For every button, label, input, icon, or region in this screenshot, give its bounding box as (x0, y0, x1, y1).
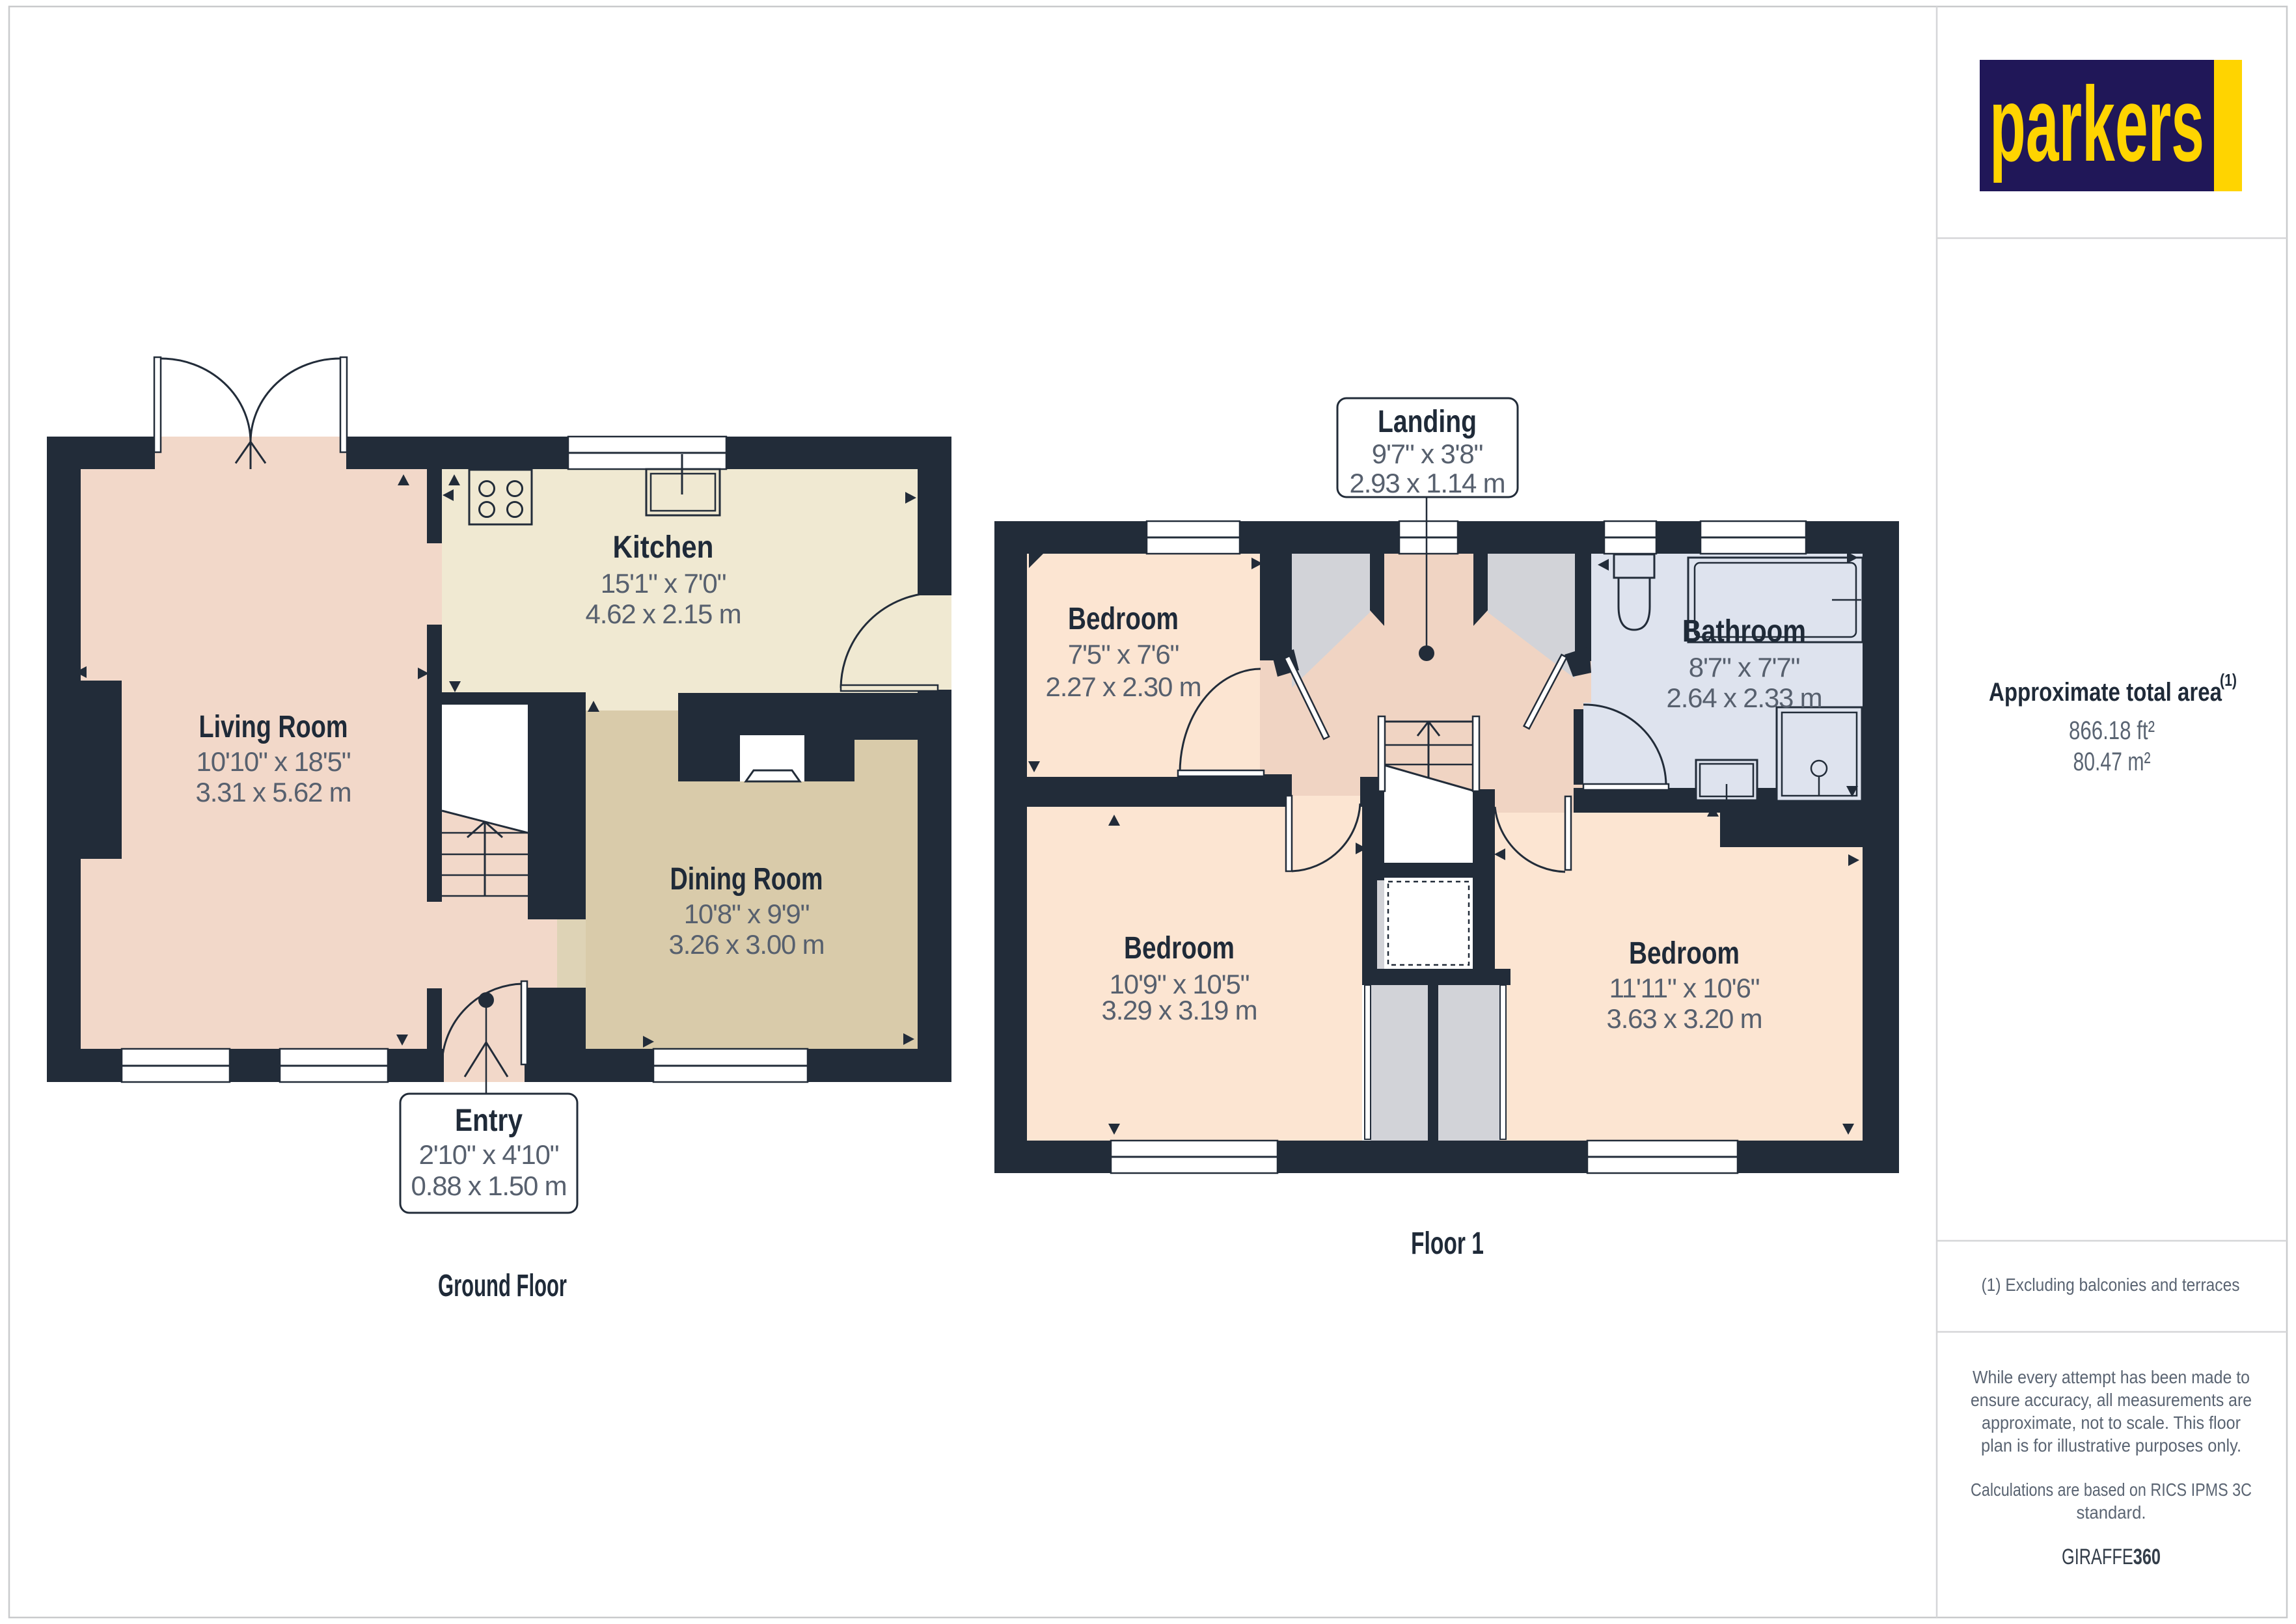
svg-text:0.88 x 1.50 m: 0.88 x 1.50 m (411, 1171, 567, 1201)
svg-text:11'11" x 10'6": 11'11" x 10'6" (1609, 973, 1760, 1003)
svg-text:15'1" x 7'0": 15'1" x 7'0" (601, 568, 726, 599)
svg-text:9'7" x 3'8": 9'7" x 3'8" (1372, 439, 1483, 469)
svg-text:Bathroom: Bathroom (1682, 614, 1806, 649)
svg-text:2'10" x 4'10": 2'10" x 4'10" (419, 1139, 559, 1170)
svg-text:Dining Room: Dining Room (670, 862, 823, 897)
svg-text:10'8" x 9'9": 10'8" x 9'9" (684, 899, 810, 929)
svg-text:866.18 ft²: 866.18 ft² (2069, 716, 2155, 745)
svg-text:Ground Floor: Ground Floor (438, 1269, 567, 1303)
svg-text:10'10" x 18'5": 10'10" x 18'5" (197, 746, 351, 777)
svg-text:GIRAFFE360: GIRAFFE360 (2062, 1545, 2161, 1569)
svg-text:While every attempt has been m: While every attempt has been made to (1973, 1367, 2250, 1387)
svg-text:8'7" x 7'7": 8'7" x 7'7" (1689, 652, 1800, 683)
svg-text:Calculations are based on RICS: Calculations are based on RICS IPMS 3C (1971, 1480, 2252, 1500)
svg-text:(1): (1) (2220, 670, 2237, 690)
svg-text:ensure accuracy, all measureme: ensure accuracy, all measurements are (1971, 1390, 2252, 1410)
svg-text:3.26 x 3.00 m: 3.26 x 3.00 m (669, 929, 825, 960)
svg-text:7'5" x 7'6": 7'5" x 7'6" (1068, 639, 1179, 670)
svg-text:2.93 x 1.14 m: 2.93 x 1.14 m (1350, 468, 1505, 498)
svg-text:80.47 m²: 80.47 m² (2073, 748, 2151, 776)
svg-text:standard.: standard. (2077, 1502, 2146, 1522)
svg-text:2.27 x 2.30 m: 2.27 x 2.30 m (1046, 671, 1201, 702)
svg-text:2.64 x 2.33 m: 2.64 x 2.33 m (1667, 683, 1822, 713)
svg-text:Floor 1: Floor 1 (1411, 1226, 1484, 1261)
svg-text:4.62 x 2.15 m: 4.62 x 2.15 m (586, 599, 741, 629)
svg-text:(1) Excluding balconies and te: (1) Excluding balconies and terraces (1982, 1275, 2240, 1295)
svg-text:Approximate total area: Approximate total area (1989, 678, 2222, 707)
svg-text:Bedroom: Bedroom (1124, 931, 1235, 966)
svg-text:Entry: Entry (455, 1103, 523, 1138)
svg-text:Bedroom: Bedroom (1068, 602, 1179, 636)
svg-text:3.63 x 3.20 m: 3.63 x 3.20 m (1607, 1003, 1762, 1034)
svg-text:Bedroom: Bedroom (1629, 936, 1740, 971)
svg-text:3.29 x 3.19 m: 3.29 x 3.19 m (1102, 995, 1257, 1025)
svg-text:Landing: Landing (1378, 405, 1477, 439)
svg-text:plan is for illustrative purpo: plan is for illustrative purposes only. (1981, 1435, 2241, 1455)
svg-text:3.31 x 5.62 m: 3.31 x 5.62 m (196, 777, 351, 807)
svg-text:approximate, not to scale. Thi: approximate, not to scale. This floor (1982, 1413, 2241, 1433)
svg-text:Living Room: Living Room (199, 710, 348, 744)
svg-text:Kitchen: Kitchen (613, 530, 714, 565)
svg-text:parkers: parkers (1989, 64, 2204, 183)
